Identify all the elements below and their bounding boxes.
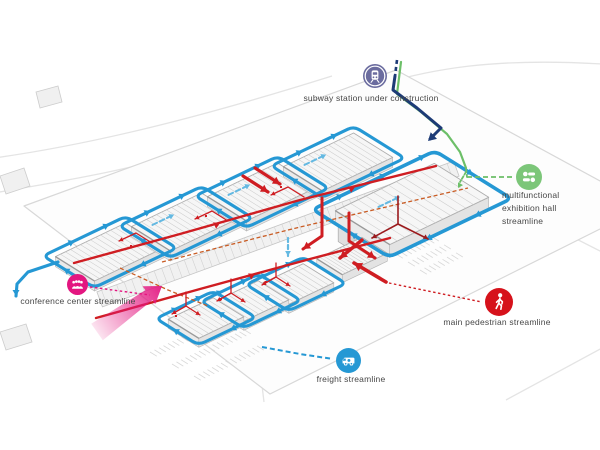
truck-icon [336,348,361,373]
multifunctional-label: multifunctional exhibition hall streamli… [502,189,559,228]
pedestrian-label: main pedestrian streamline [397,317,597,328]
freight-label: freight streamline [251,374,451,385]
train-icon [363,64,387,88]
conference-label: conference center streamline [0,296,156,307]
circulation-diagram: subway station under construction multif… [0,0,600,450]
subway-label: subway station under construction [271,93,471,104]
audience-icon [67,274,88,295]
sliders-icon [516,164,542,190]
walking-person-icon [485,288,513,316]
